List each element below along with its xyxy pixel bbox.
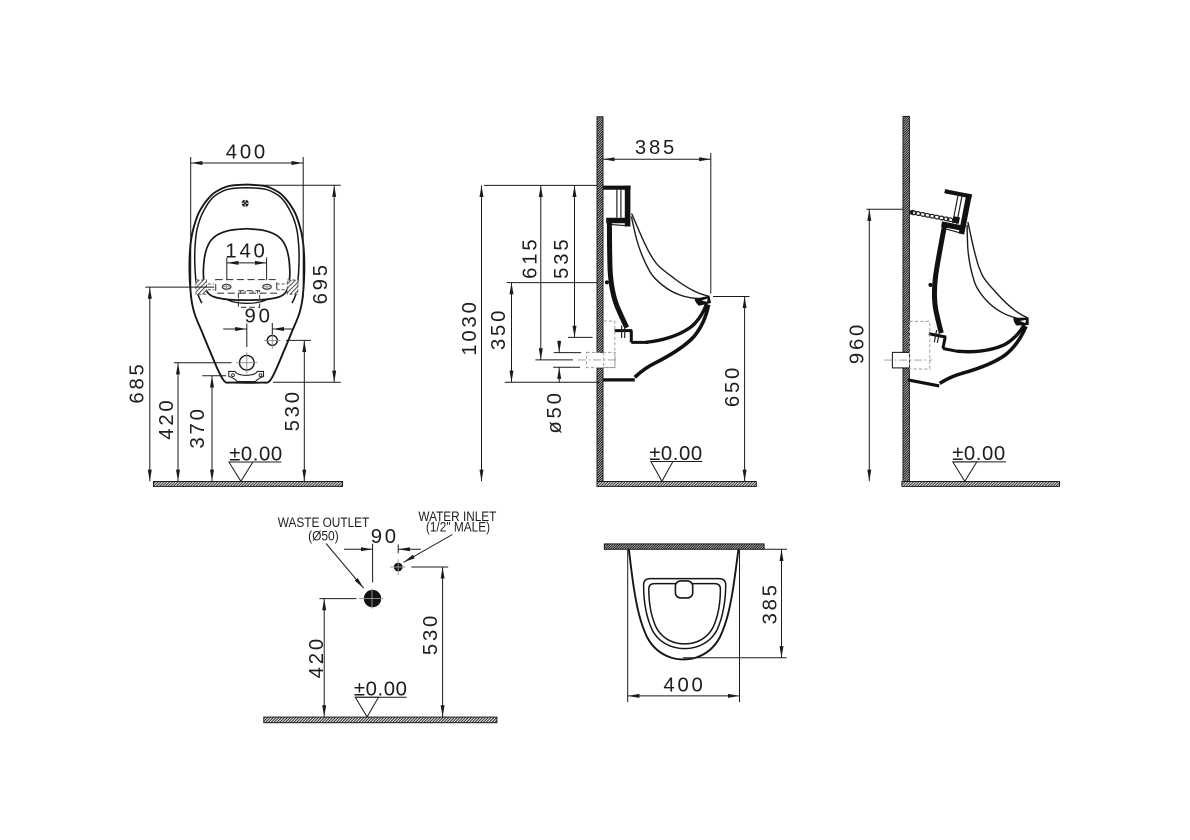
- svg-text:420: 420: [306, 636, 328, 678]
- svg-text:400: 400: [226, 142, 268, 164]
- svg-text:ø50: ø50: [544, 390, 566, 433]
- svg-text:685: 685: [127, 361, 149, 403]
- svg-text:385: 385: [759, 582, 781, 624]
- svg-text:370: 370: [187, 406, 209, 448]
- svg-text:960: 960: [846, 322, 868, 364]
- svg-text:350: 350: [488, 308, 510, 350]
- svg-text:1030: 1030: [459, 299, 481, 355]
- svg-text:(Ø50): (Ø50): [308, 528, 339, 543]
- svg-text:90: 90: [371, 526, 399, 548]
- svg-text:385: 385: [635, 137, 677, 159]
- svg-text:90: 90: [245, 306, 273, 328]
- svg-text:650: 650: [722, 365, 744, 407]
- svg-text:530: 530: [420, 613, 442, 655]
- svg-text:400: 400: [663, 675, 705, 697]
- svg-text:530: 530: [282, 389, 304, 431]
- svg-text:535: 535: [551, 237, 573, 279]
- svg-text:(1/2" MALE): (1/2" MALE): [426, 519, 490, 534]
- svg-text:615: 615: [519, 237, 541, 279]
- svg-text:140: 140: [225, 241, 267, 263]
- svg-text:695: 695: [310, 262, 332, 304]
- svg-text:420: 420: [156, 397, 178, 439]
